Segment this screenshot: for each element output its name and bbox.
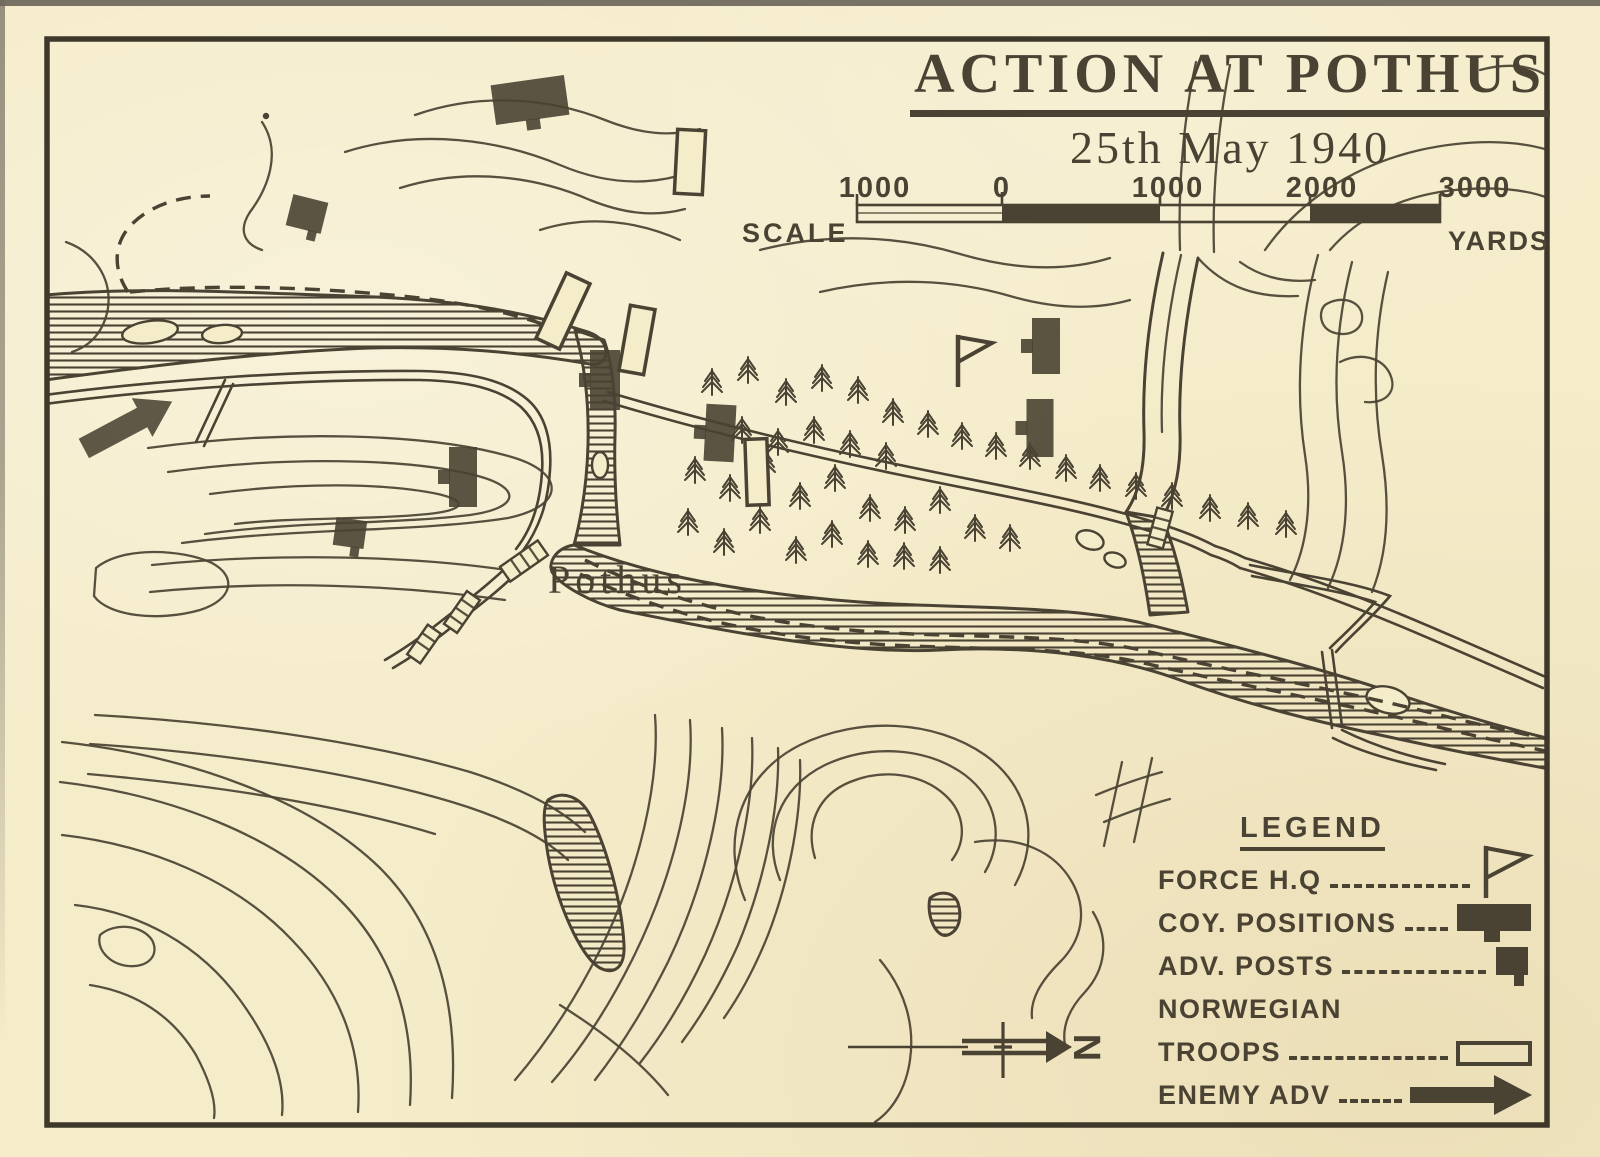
scale-tick-0: 0 (993, 172, 1011, 205)
map-sheet: ACTION AT POTHUS 25th May 1940 SCALE 100… (0, 0, 1600, 1157)
scale-unit: YARDS (1448, 226, 1550, 257)
coy-position-marker (491, 75, 571, 135)
force-hq-flag-marker (958, 335, 992, 387)
coy-position-marker (1021, 318, 1060, 374)
legend-row-coy-positions: COY. POSITIONS (1158, 903, 1534, 937)
legend-label: FORCE H.Q (1158, 867, 1322, 894)
map-title: ACTION AT POTHUS (910, 46, 1550, 117)
conifer-tree-icon (768, 429, 788, 455)
legend-label: NORWEGIAN (1158, 996, 1342, 1023)
bridge-southwest-1 (444, 591, 480, 633)
adv-post-icon (1492, 944, 1534, 980)
title-block: ACTION AT POTHUS 25th May 1940 (910, 46, 1550, 171)
scale-tick-1000: 1000 (1132, 172, 1205, 205)
scale-tick-3000: 3000 (1439, 172, 1512, 205)
adv-post-marker (283, 194, 328, 242)
conifer-tree-icon (812, 365, 832, 391)
conifer-tree-icon (790, 483, 810, 509)
legend-row-troops: TROOPS (1158, 1032, 1534, 1066)
legend-leader (1289, 1056, 1448, 1060)
norwegian-troops-marker (674, 129, 705, 194)
conifer-tree-icon (776, 379, 796, 405)
conifer-tree-icon (1090, 465, 1110, 491)
conifer-tree-icon (685, 457, 705, 483)
conifer-tree-icon (876, 443, 896, 469)
conifer-tree-icon (1238, 503, 1258, 529)
conifer-tree-icon (930, 487, 950, 513)
conifer-tree-icon (702, 369, 722, 395)
norwegian-troops-icon (1454, 1038, 1534, 1066)
hatched-pond-small (929, 893, 960, 935)
norwegian-troops-marker (619, 305, 655, 374)
map-date: 25th May 1940 (910, 125, 1550, 171)
conifer-tree-icon (678, 509, 698, 535)
legend-leader (1330, 884, 1470, 888)
legend: LEGEND FORCE H.Q COY. POSITIONS (1158, 812, 1534, 1109)
conifer-tree-icon (1276, 511, 1296, 537)
bridge-pothus (500, 540, 548, 581)
conifer-tree-icon (822, 521, 842, 547)
conifer-tree-icon (930, 547, 950, 573)
conifer-tree-icon (1126, 473, 1146, 499)
place-label-pothus: Pothus (548, 556, 687, 603)
legend-row-adv-posts: ADV. POSTS (1158, 946, 1534, 980)
conifer-tree-icon (786, 537, 806, 563)
scale-tick-1000-left: 1000 (839, 172, 912, 205)
conifer-tree-icon (860, 495, 880, 521)
north-arrow (848, 1022, 1072, 1078)
legend-leader (1339, 1099, 1402, 1103)
coy-position-icon (1454, 901, 1534, 937)
conifer-tree-icon (918, 411, 938, 437)
north-letter: N (1064, 1034, 1107, 1061)
conifer-tree-icon (1000, 525, 1020, 551)
legend-leader (1405, 927, 1448, 931)
dashed-road-arc (117, 196, 210, 292)
scale-label: SCALE (742, 218, 849, 249)
conifer-tree-icon (952, 423, 972, 449)
legend-label: ENEMY ADV (1158, 1082, 1331, 1109)
conifer-tree-icon (1162, 483, 1182, 509)
conifer-tree-icon (883, 399, 903, 425)
force-hq-flag-icon (1476, 840, 1534, 894)
conifer-tree-icon (1200, 495, 1220, 521)
conifer-tree-icon (750, 507, 770, 533)
tributary-inner-line (1162, 255, 1181, 432)
conifer-tree-icon (894, 543, 914, 569)
river-east-arm (551, 545, 1555, 770)
coy-position-marker (1016, 399, 1054, 457)
legend-heading: LEGEND (1240, 812, 1385, 851)
conifer-tree-icon (965, 515, 985, 541)
adv-post-marker (331, 517, 367, 558)
legend-row-enemy-adv: ENEMY ADV (1158, 1075, 1534, 1109)
legend-row-force-hq: FORCE H.Q (1158, 860, 1534, 894)
enemy-adv-arrow-icon (1408, 1073, 1534, 1109)
hatched-lake (544, 795, 624, 970)
scale-tick-2000: 2000 (1286, 172, 1359, 205)
conifer-tree-icon (895, 507, 915, 533)
norwegian-troops-marker (745, 439, 769, 506)
coy-position-marker (438, 447, 477, 507)
legend-label: ADV. POSTS (1158, 953, 1334, 980)
legend-label: COY. POSITIONS (1158, 910, 1397, 937)
conifer-tree-icon (1056, 455, 1076, 481)
tributary-east-bank (1162, 258, 1198, 518)
conifer-tree-icon (986, 433, 1006, 459)
conifer-tree-icon (825, 465, 845, 491)
conifer-tree-icon (858, 541, 878, 567)
conifer-tree-icon (720, 475, 740, 501)
roads (45, 196, 1552, 770)
legend-row-norwegian: NORWEGIAN (1158, 989, 1534, 1023)
conifer-tree-icon (848, 377, 868, 403)
conifer-tree-icon (738, 357, 758, 383)
conifer-tree-icon (804, 417, 824, 443)
legend-label: TROOPS (1158, 1039, 1281, 1066)
coy-position-marker (693, 403, 737, 462)
conifer-tree-icon (714, 529, 734, 555)
tributary-west-bank (1126, 253, 1163, 512)
legend-leader (1342, 970, 1486, 974)
